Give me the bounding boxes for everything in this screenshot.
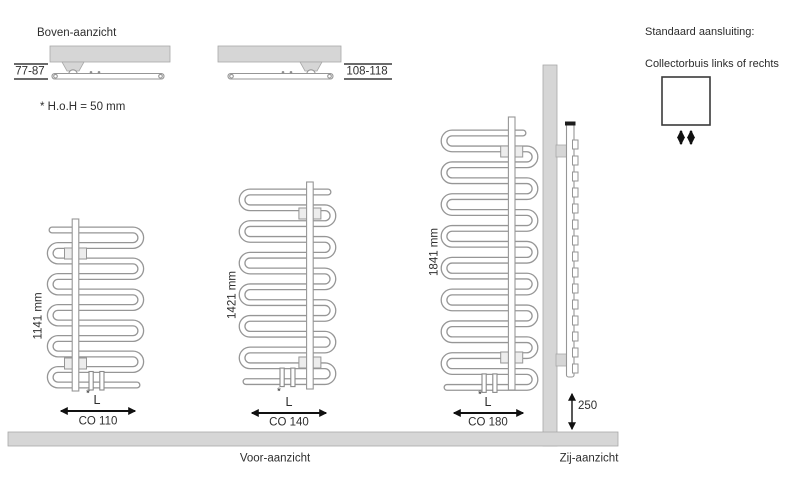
side-radiator-loop-ends (573, 140, 579, 373)
radiator-coil (444, 133, 535, 387)
radiator-co-140 (242, 182, 333, 389)
loop-end-tick (573, 364, 579, 373)
connection-box (662, 77, 710, 125)
width-label-co110: L (94, 394, 101, 408)
top-view-left-dimension: 77-87 (15, 66, 44, 79)
front-view-label: Voor-aanzicht (240, 453, 310, 466)
footnote-marker: * (277, 387, 281, 398)
width-label-co140: L (286, 396, 293, 410)
collector-tube (307, 182, 314, 389)
loop-end-tick (573, 188, 579, 197)
side-radiator-top-cap (565, 122, 576, 126)
top-view-left-body (50, 46, 170, 62)
valve-fitting (493, 374, 497, 393)
radiator-height-co180: 1841 mm (429, 228, 442, 276)
valve-fitting (100, 372, 104, 391)
radiator-height-co140: 1421 mm (227, 271, 240, 319)
radiator-dimension-diagram: Boven-aanzicht 77-87 108-118 * H.o.H = 5… (0, 0, 800, 483)
valve-fitting (280, 368, 284, 387)
radiator-coil (50, 230, 140, 385)
loop-end-tick (573, 316, 579, 325)
model-label-co110: CO 110 (79, 416, 118, 429)
radiator-co-110 (50, 219, 140, 391)
loop-end-tick (573, 204, 579, 213)
valve-fitting (482, 374, 486, 393)
top-view-title: Boven-aanzicht (37, 27, 116, 40)
connection-description: Collectorbuis links of rechts (645, 58, 779, 70)
footnote-marker: * (86, 389, 90, 400)
radiator-co-180 (444, 117, 535, 392)
footnote-marker: * (478, 390, 482, 401)
loop-end-tick (573, 156, 579, 165)
loop-end-tick (573, 220, 579, 229)
tube-end-cap (54, 74, 58, 78)
collector-tube (72, 219, 79, 391)
connection-detail (662, 77, 710, 144)
collector-tube (508, 117, 515, 390)
loop-end-tick (573, 300, 579, 309)
connection-dot (98, 71, 101, 74)
connection-dot (290, 71, 293, 74)
valve-fitting (291, 368, 295, 387)
top-view-right-dimension: 108-118 (346, 66, 387, 79)
tube-end-cap (230, 74, 234, 78)
tube-end-cap (159, 74, 163, 78)
diagram-drawing (0, 0, 800, 483)
valve-fitting (89, 372, 93, 391)
loop-end-tick (573, 332, 579, 341)
top-view-right-body (218, 46, 341, 62)
radiator-height-co110: 1141 mm (33, 292, 46, 339)
connection-dot (90, 71, 93, 74)
connection-heading: Standaard aansluiting: (645, 26, 754, 38)
hoh-note: * H.o.H = 50 mm (40, 101, 125, 114)
top-view-left-collector-tube (52, 74, 164, 80)
width-label-co180: L (485, 396, 492, 410)
front-view-radiators (50, 117, 535, 392)
loop-end-tick (573, 252, 579, 261)
wall (543, 65, 557, 446)
loop-end-tick (573, 172, 579, 181)
top-view-right-collector-tube (228, 74, 333, 80)
loop-end-tick (573, 268, 579, 277)
tube-end-cap (328, 74, 332, 78)
loop-end-tick (573, 284, 579, 293)
loop-end-tick (573, 140, 579, 149)
connection-dot (282, 71, 285, 74)
floor (8, 432, 618, 446)
side-view-label: Zij-aanzicht (560, 453, 619, 466)
loop-end-tick (573, 236, 579, 245)
model-label-co180: CO 180 (468, 417, 508, 430)
clearance-250-label: 250 (578, 400, 597, 413)
side-view-radiator (556, 122, 578, 430)
loop-end-tick (573, 348, 579, 357)
model-label-co140: CO 140 (269, 417, 309, 430)
